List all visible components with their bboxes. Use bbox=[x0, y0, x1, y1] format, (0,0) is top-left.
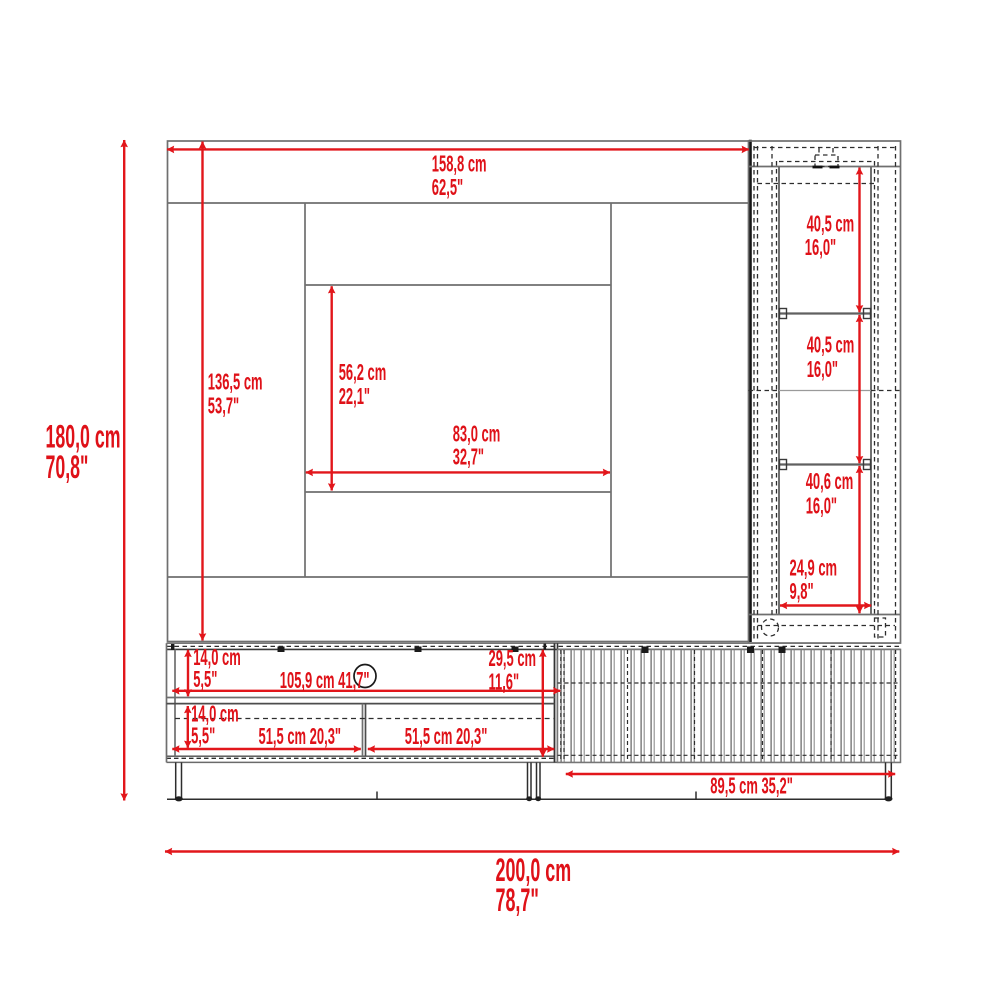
svg-text:40,5 cm: 40,5 cm bbox=[807, 333, 855, 359]
svg-text:136,5 cm: 136,5 cm bbox=[208, 370, 263, 396]
svg-text:16,0": 16,0" bbox=[805, 235, 836, 261]
svg-text:22,1": 22,1" bbox=[339, 384, 370, 410]
svg-text:53,7": 53,7" bbox=[208, 394, 239, 420]
svg-text:62,5": 62,5" bbox=[432, 175, 463, 201]
svg-text:158,8 cm: 158,8 cm bbox=[432, 152, 487, 178]
svg-text:78,7": 78,7" bbox=[496, 884, 539, 919]
svg-text:40,5 cm: 40,5 cm bbox=[807, 212, 855, 238]
svg-text:29,5 cm: 29,5 cm bbox=[489, 646, 537, 672]
svg-text:5,5": 5,5" bbox=[193, 667, 217, 693]
svg-text:9,8": 9,8" bbox=[790, 579, 814, 605]
svg-text:105,9 cm 41,7": 105,9 cm 41,7" bbox=[280, 668, 370, 694]
svg-text:16,0": 16,0" bbox=[806, 494, 837, 520]
svg-text:11,6": 11,6" bbox=[489, 670, 520, 696]
svg-text:70,8": 70,8" bbox=[46, 451, 89, 486]
svg-text:24,9 cm: 24,9 cm bbox=[790, 556, 838, 582]
svg-text:56,2 cm: 56,2 cm bbox=[339, 360, 387, 386]
svg-text:5,5": 5,5" bbox=[191, 724, 215, 750]
svg-text:51,5 cm 20,3": 51,5 cm 20,3" bbox=[259, 724, 342, 750]
svg-text:51,5 cm 20,3": 51,5 cm 20,3" bbox=[405, 724, 488, 750]
svg-text:180,0 cm: 180,0 cm bbox=[46, 420, 121, 455]
svg-text:89,5 cm 35,2": 89,5 cm 35,2" bbox=[710, 774, 793, 800]
svg-text:32,7": 32,7" bbox=[453, 444, 484, 470]
svg-text:40,6 cm: 40,6 cm bbox=[806, 469, 854, 495]
svg-text:16,0": 16,0" bbox=[807, 357, 838, 383]
